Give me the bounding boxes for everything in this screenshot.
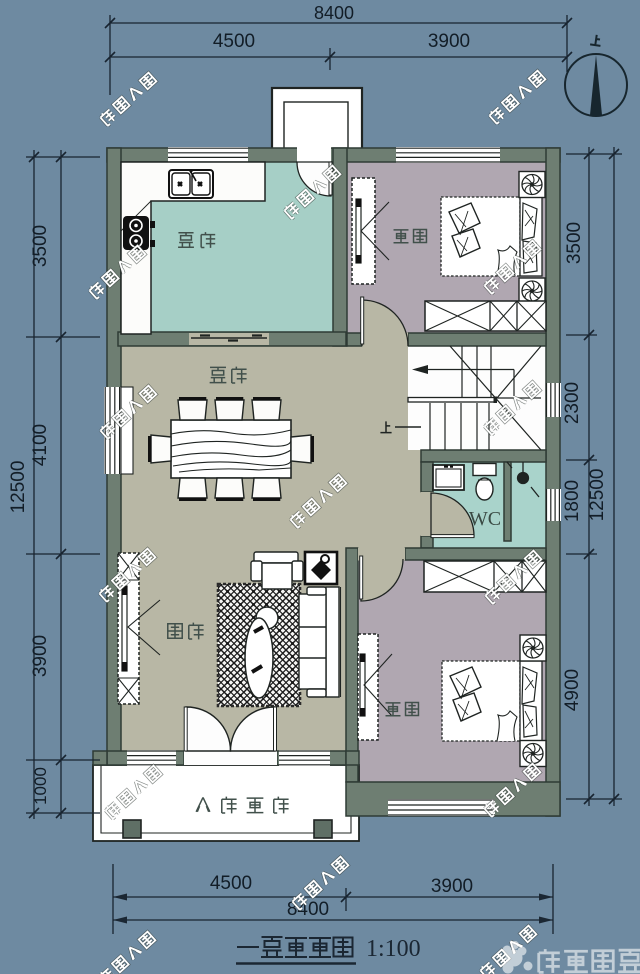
svg-text:3900: 3900 (428, 31, 470, 52)
svg-text:3900: 3900 (431, 876, 473, 897)
svg-text:4900: 4900 (562, 669, 583, 711)
svg-text:WC: WC (469, 508, 501, 530)
svg-text:1000: 1000 (31, 767, 50, 805)
svg-text:4500: 4500 (210, 873, 252, 894)
svg-text:2300: 2300 (562, 382, 583, 424)
svg-text:4100: 4100 (30, 424, 51, 466)
svg-text:3900: 3900 (30, 635, 51, 677)
svg-text:3500: 3500 (564, 222, 585, 264)
svg-text:8400: 8400 (314, 3, 354, 23)
svg-text:1800: 1800 (562, 480, 583, 522)
svg-text:12500: 12500 (8, 461, 29, 514)
svg-text:3500: 3500 (30, 225, 51, 267)
svg-text:1:100: 1:100 (366, 936, 421, 962)
svg-text:12500: 12500 (587, 469, 608, 522)
svg-text:4500: 4500 (213, 31, 255, 52)
